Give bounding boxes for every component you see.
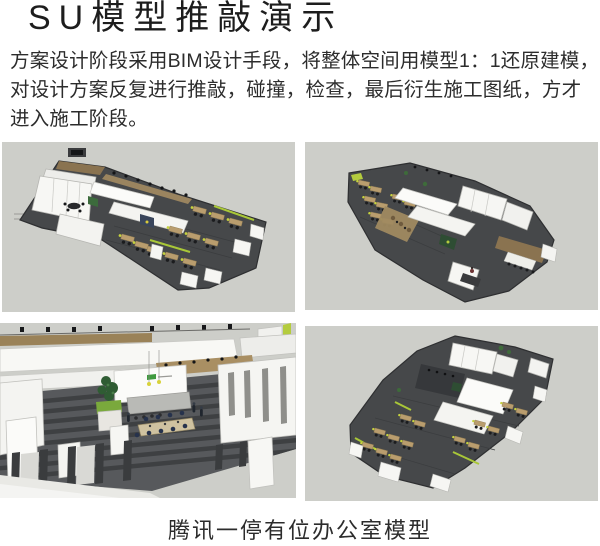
su-model-render-icon (2, 142, 295, 312)
su-model-render-icon (0, 323, 296, 498)
intro-line: 对设计方案反复进行推敲，碰撞，检查，最后衍生施工图纸，方才 (10, 76, 598, 105)
model-image-bottom-right (305, 326, 598, 501)
model-image-bottom-left (0, 323, 296, 498)
intro-paragraph: 方案设计阶段采用BIM设计手段，将整体空间用模型1：1还原建模， 对设计方案反复… (10, 47, 598, 134)
model-image-top-left (2, 142, 295, 312)
su-model-render-icon (305, 142, 598, 310)
su-model-render-icon (305, 326, 598, 501)
image-caption: 腾讯一停有位办公室模型 (0, 513, 600, 545)
intro-line: 方案设计阶段采用BIM设计手段，将整体空间用模型1：1还原建模， (10, 47, 598, 76)
intro-line: 进入施工阶段。 (10, 105, 598, 134)
model-image-top-right (305, 142, 598, 310)
page-title: SU模型推敲演示 (28, 0, 343, 40)
